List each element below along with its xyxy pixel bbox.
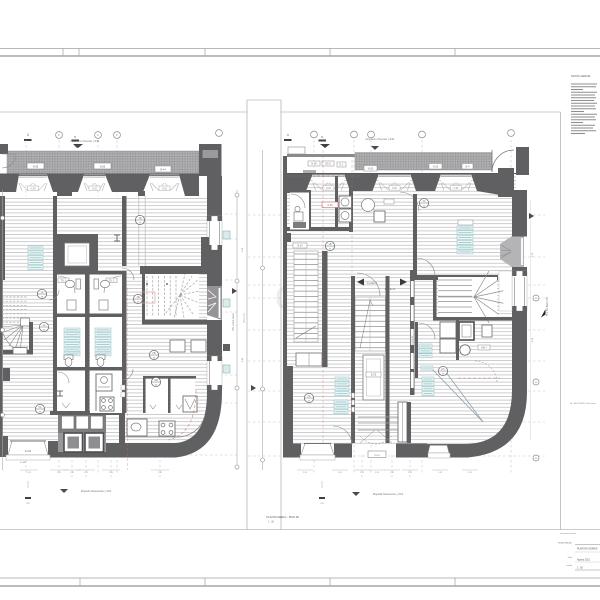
svg-text:PLANTA GERAL - PISO 00: PLANTA GERAL - PISO 00 [267, 515, 300, 519]
svg-text:Rua das Aguas 231: Rua das Aguas 231 [546, 296, 549, 316]
svg-text:B.04: B.04 [297, 244, 303, 248]
svg-text:B.4: B.4 [466, 165, 470, 169]
svg-text:Rojado Nascente | 231: Rojado Nascente | 231 [81, 489, 112, 493]
svg-text:1.25: 1.25 [375, 472, 379, 474]
svg-text:1.25: 1.25 [57, 472, 61, 474]
svg-text:N.05: N.05 [454, 188, 460, 190]
svg-text:1.25: 1.25 [408, 472, 412, 474]
svg-text:1.25: 1.25 [390, 472, 394, 474]
svg-text:N.05: N.05 [33, 165, 39, 169]
svg-text:1.25: 1.25 [360, 472, 364, 474]
svg-text:N.05: N.05 [433, 165, 439, 169]
svg-text:1.25: 1.25 [338, 472, 342, 474]
svg-text:252 | xxxx: 252 | xxxx [244, 312, 246, 323]
svg-text:1.25: 1.25 [109, 472, 113, 474]
svg-text:PLANTAS GERAIS: PLANTAS GERAIS [577, 548, 598, 551]
svg-text:LV.ME.PE: LV.ME.PE [412, 335, 414, 345]
svg-text:E.1: E.1 [340, 163, 344, 167]
svg-text:1A: 1A [40, 290, 43, 294]
svg-text:TU.1: TU.1 [61, 278, 67, 282]
svg-text:Rojada Nascente | 231: Rojada Nascente | 231 [373, 492, 404, 496]
svg-text:0C: 0C [441, 367, 444, 371]
svg-text:Arqueiro Poente | 231: Arqueiro Poente | 231 [365, 137, 394, 141]
svg-text:1B: 1B [136, 295, 139, 299]
svg-text:HB.7: HB.7 [481, 346, 487, 350]
svg-text:1A: 1A [42, 323, 45, 327]
svg-text:E.448: E.448 [20, 462, 26, 464]
svg-text:1.25: 1.25 [70, 472, 74, 474]
svg-text:ELABORAÇÃO: ELABORAÇÃO [558, 542, 572, 545]
svg-text:1 : 50: 1 : 50 [268, 521, 275, 524]
svg-text:N.05: N.05 [162, 189, 168, 191]
svg-text:N.05: N.05 [368, 167, 374, 171]
svg-text:E.05: E.05 [371, 373, 377, 377]
svg-text:escala: escala [566, 565, 573, 567]
svg-text:0B: 0B [154, 378, 157, 382]
svg-text:B: B [321, 135, 323, 139]
svg-text:N.05: N.05 [92, 189, 98, 191]
svg-text:N.05: N.05 [100, 165, 106, 169]
svg-text:0A: 0A [38, 405, 41, 409]
svg-text:1B: 1B [328, 242, 331, 246]
svg-text:1.25: 1.25 [468, 472, 472, 474]
svg-text:SL. 38.677.0029 - Rua xxxxx: SL. 38.677.0029 - Rua xxxxx [570, 403, 596, 405]
svg-text:N.05: N.05 [311, 162, 317, 166]
svg-text:1C: 1C [422, 199, 425, 203]
svg-text:0A: 0A [307, 394, 310, 398]
svg-text:E.440: E.440 [25, 450, 32, 453]
svg-text:1B: 1B [138, 216, 141, 220]
svg-text:ES.0: ES.0 [325, 162, 331, 166]
svg-text:B.44: B.44 [160, 168, 166, 172]
svg-text:1.25: 1.25 [84, 472, 88, 474]
svg-text:TB.01: TB.01 [374, 455, 381, 457]
svg-text:0B: 0B [152, 351, 155, 355]
svg-text:1.25: 1.25 [438, 472, 442, 474]
svg-text:1 : 50: 1 : 50 [577, 568, 583, 570]
svg-text:N.05: N.05 [327, 204, 333, 207]
svg-text:Arqueiro Poente | 231: Arqueiro Poente | 231 [70, 139, 99, 143]
svg-text:xxxx xxxxxx x xxxxx: xxxx xxxxxx x xxxxx [560, 533, 576, 535]
svg-text:Agosto 2021: Agosto 2021 [577, 559, 591, 562]
svg-text:1.25: 1.25 [303, 472, 307, 474]
svg-text:1.25: 1.25 [158, 472, 162, 474]
svg-text:231 | xxxx xxxxx: 231 | xxxx xxxxx [232, 313, 235, 331]
svg-text:N.05: N.05 [326, 188, 332, 190]
svg-text:N.05: N.05 [392, 188, 398, 190]
svg-text:1.25: 1.25 [27, 472, 31, 474]
svg-text:TU.2: TU.2 [109, 278, 115, 282]
svg-text:N.05: N.05 [31, 189, 37, 191]
svg-text:NOTAS GERAIS:: NOTAS GERAIS: [571, 74, 591, 78]
